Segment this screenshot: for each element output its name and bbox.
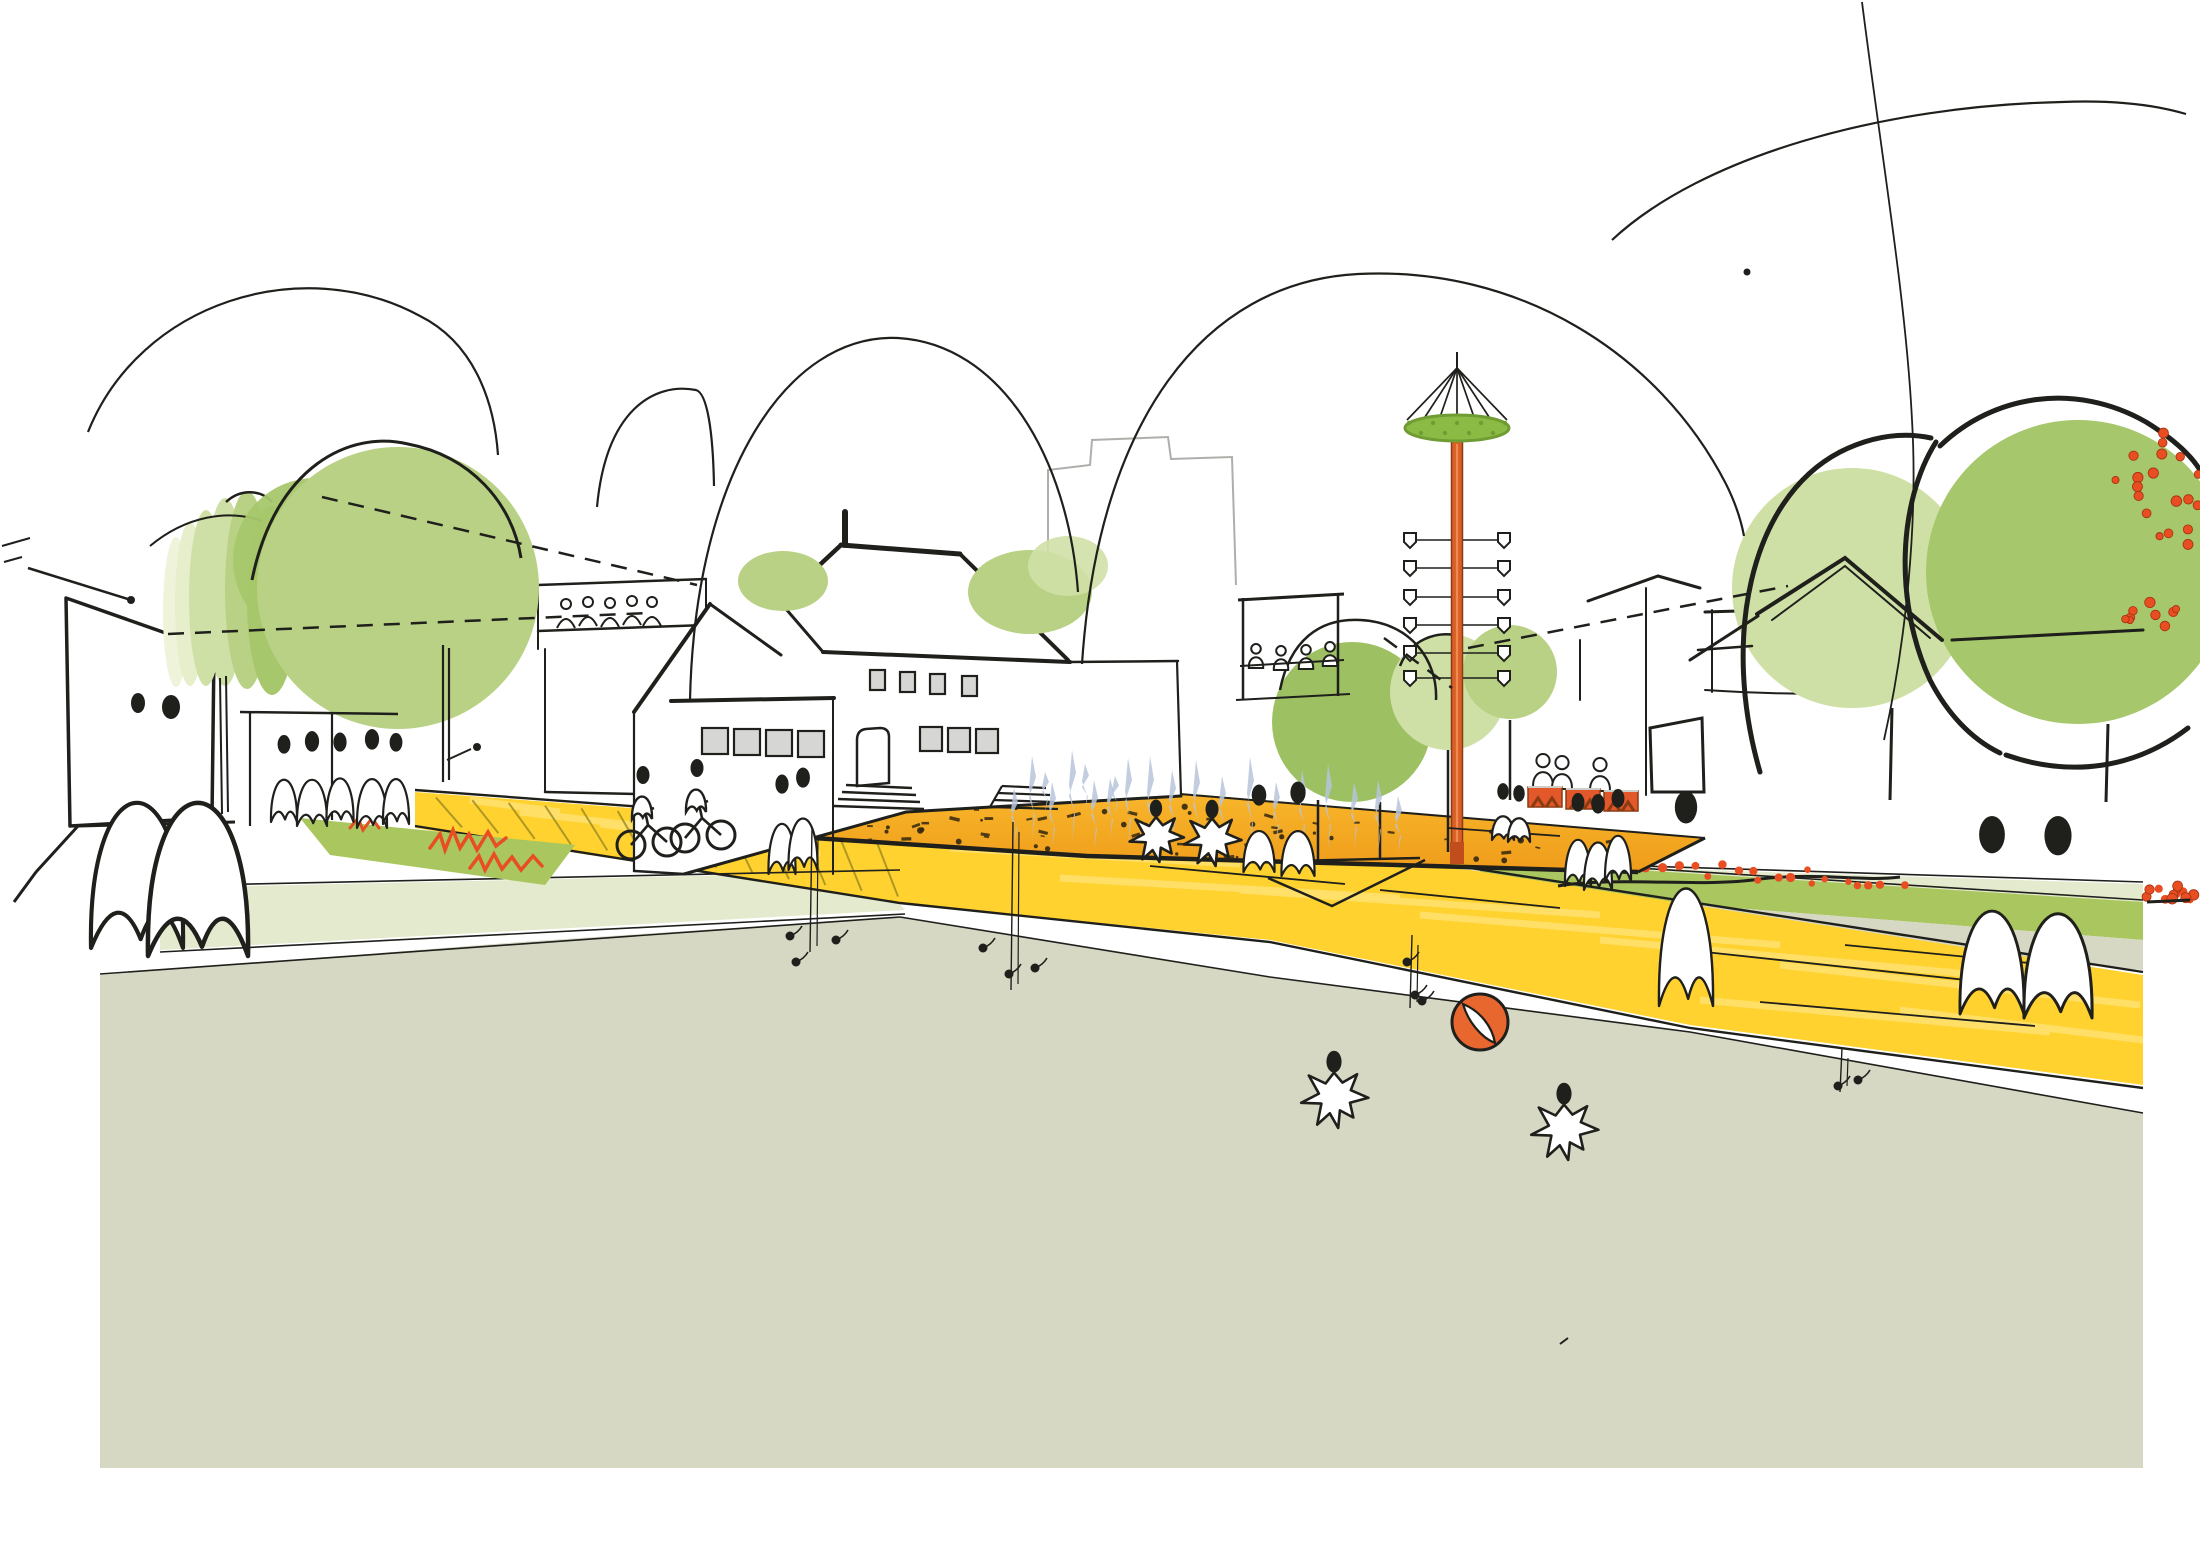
figure-head <box>1591 794 1605 814</box>
maypole-base <box>1450 842 1464 864</box>
sketch-svg <box>0 0 2200 1555</box>
figure-head <box>1555 756 1568 769</box>
fruit-dot <box>2194 470 2200 478</box>
figure-head <box>775 775 788 794</box>
sketch-dot <box>127 596 135 604</box>
flower-dot <box>1749 867 1757 875</box>
figure-head <box>1593 758 1606 771</box>
figure-head <box>333 733 346 752</box>
window <box>948 728 970 752</box>
fruit-dot <box>2173 881 2183 891</box>
window <box>900 672 915 692</box>
figure-head <box>583 597 593 607</box>
figure-head <box>1979 816 2005 853</box>
fruit-dot <box>2148 468 2158 478</box>
fruit-dot <box>2172 605 2179 612</box>
figure-head <box>1612 789 1625 808</box>
flower-dot <box>1821 876 1828 883</box>
flower-dot <box>1675 861 1684 870</box>
figure-head <box>1536 754 1549 767</box>
fruit-dot <box>2160 621 2170 631</box>
figure-head <box>1206 800 1219 819</box>
flower-dot <box>1845 879 1851 885</box>
window <box>798 731 824 757</box>
fruit-dot <box>2159 428 2169 438</box>
window <box>930 674 945 694</box>
figure-head <box>1325 642 1335 652</box>
rider-body <box>632 797 652 819</box>
figure-head <box>1251 644 1261 654</box>
fruit-dot <box>2157 449 2167 459</box>
figure-head <box>1301 645 1311 655</box>
figure-head <box>278 735 291 754</box>
figure-head <box>561 599 571 609</box>
figure-head <box>365 729 379 750</box>
flower-dot <box>1754 877 1761 884</box>
illustration-canvas: Hand-drawn architectural concept sketch:… <box>0 0 2200 1555</box>
fruit-dot <box>2133 472 2143 482</box>
flower-dot <box>2155 885 2163 893</box>
fruit-dot <box>2183 539 2193 549</box>
figure-head <box>1276 646 1286 656</box>
figure-head <box>691 759 704 777</box>
fruit-dot <box>2134 491 2143 500</box>
fruit-dot <box>2176 452 2185 461</box>
figure-head <box>637 766 650 784</box>
fruit-dot <box>2156 533 2163 540</box>
fruit-dot <box>2183 525 2192 534</box>
fruit-dot <box>2129 451 2138 460</box>
figure-head <box>647 597 657 607</box>
figure-head <box>131 693 145 713</box>
fruit-dot <box>2129 606 2138 615</box>
fruit-dot <box>2158 438 2167 447</box>
figure-head <box>390 733 403 752</box>
figure-head <box>305 731 319 752</box>
flower-dot <box>1876 881 1884 889</box>
figure-head <box>1326 1051 1341 1073</box>
sketch-dot <box>1744 269 1751 276</box>
figure-head <box>796 768 810 788</box>
bench-block <box>1528 787 1562 807</box>
window <box>870 670 885 690</box>
flower-dot <box>1854 882 1862 890</box>
fruit-dot <box>2184 495 2194 505</box>
window <box>976 729 998 753</box>
flower-dot <box>1718 860 1726 868</box>
figure-head <box>1556 1083 1571 1105</box>
streets-and-ground <box>100 790 2196 1468</box>
figure-head <box>1513 785 1524 802</box>
beach-ball <box>1452 994 1508 1050</box>
fruit-dot <box>2164 529 2173 538</box>
figure-head <box>1497 783 1508 800</box>
flower-dot <box>1658 863 1667 872</box>
window <box>962 676 977 696</box>
rider-body <box>686 790 706 812</box>
right-edge-flowers <box>2147 900 2190 902</box>
fruit-dot <box>2151 610 2160 619</box>
figure-head <box>1572 793 1585 812</box>
flower-dot <box>1864 881 1872 889</box>
flower-dot <box>1809 880 1815 886</box>
figure-head <box>2044 816 2071 855</box>
fruit-dot <box>2145 885 2154 894</box>
maypole-wreath <box>1405 415 1509 441</box>
flower-dot <box>1775 873 1783 881</box>
fruit-dot <box>2193 501 2200 510</box>
fruit-dot <box>2122 615 2129 622</box>
figure-head <box>605 598 615 608</box>
figure-head <box>162 695 180 719</box>
figure-head <box>1675 791 1697 823</box>
flower-dot <box>1901 881 1909 889</box>
window <box>734 729 760 755</box>
figure-head <box>1252 785 1267 806</box>
sketch-dot <box>473 743 481 751</box>
figure-head <box>1150 799 1162 817</box>
fruit-dot <box>2142 509 2151 518</box>
figure-head <box>627 596 637 606</box>
figure-head <box>1290 782 1305 804</box>
fruit-dot <box>2132 482 2142 492</box>
flower-dot <box>1735 866 1743 874</box>
flower-dot <box>1704 873 1711 880</box>
window <box>766 730 792 756</box>
fruit-dot <box>2112 476 2119 483</box>
fruit-dot <box>2145 597 2155 607</box>
window <box>920 727 942 751</box>
entrance-door <box>857 728 889 786</box>
flower-dot <box>1786 873 1795 882</box>
flower-dot <box>1804 866 1811 873</box>
flower-dot <box>1691 862 1699 870</box>
window <box>702 728 728 754</box>
fruit-dot <box>2171 496 2182 507</box>
